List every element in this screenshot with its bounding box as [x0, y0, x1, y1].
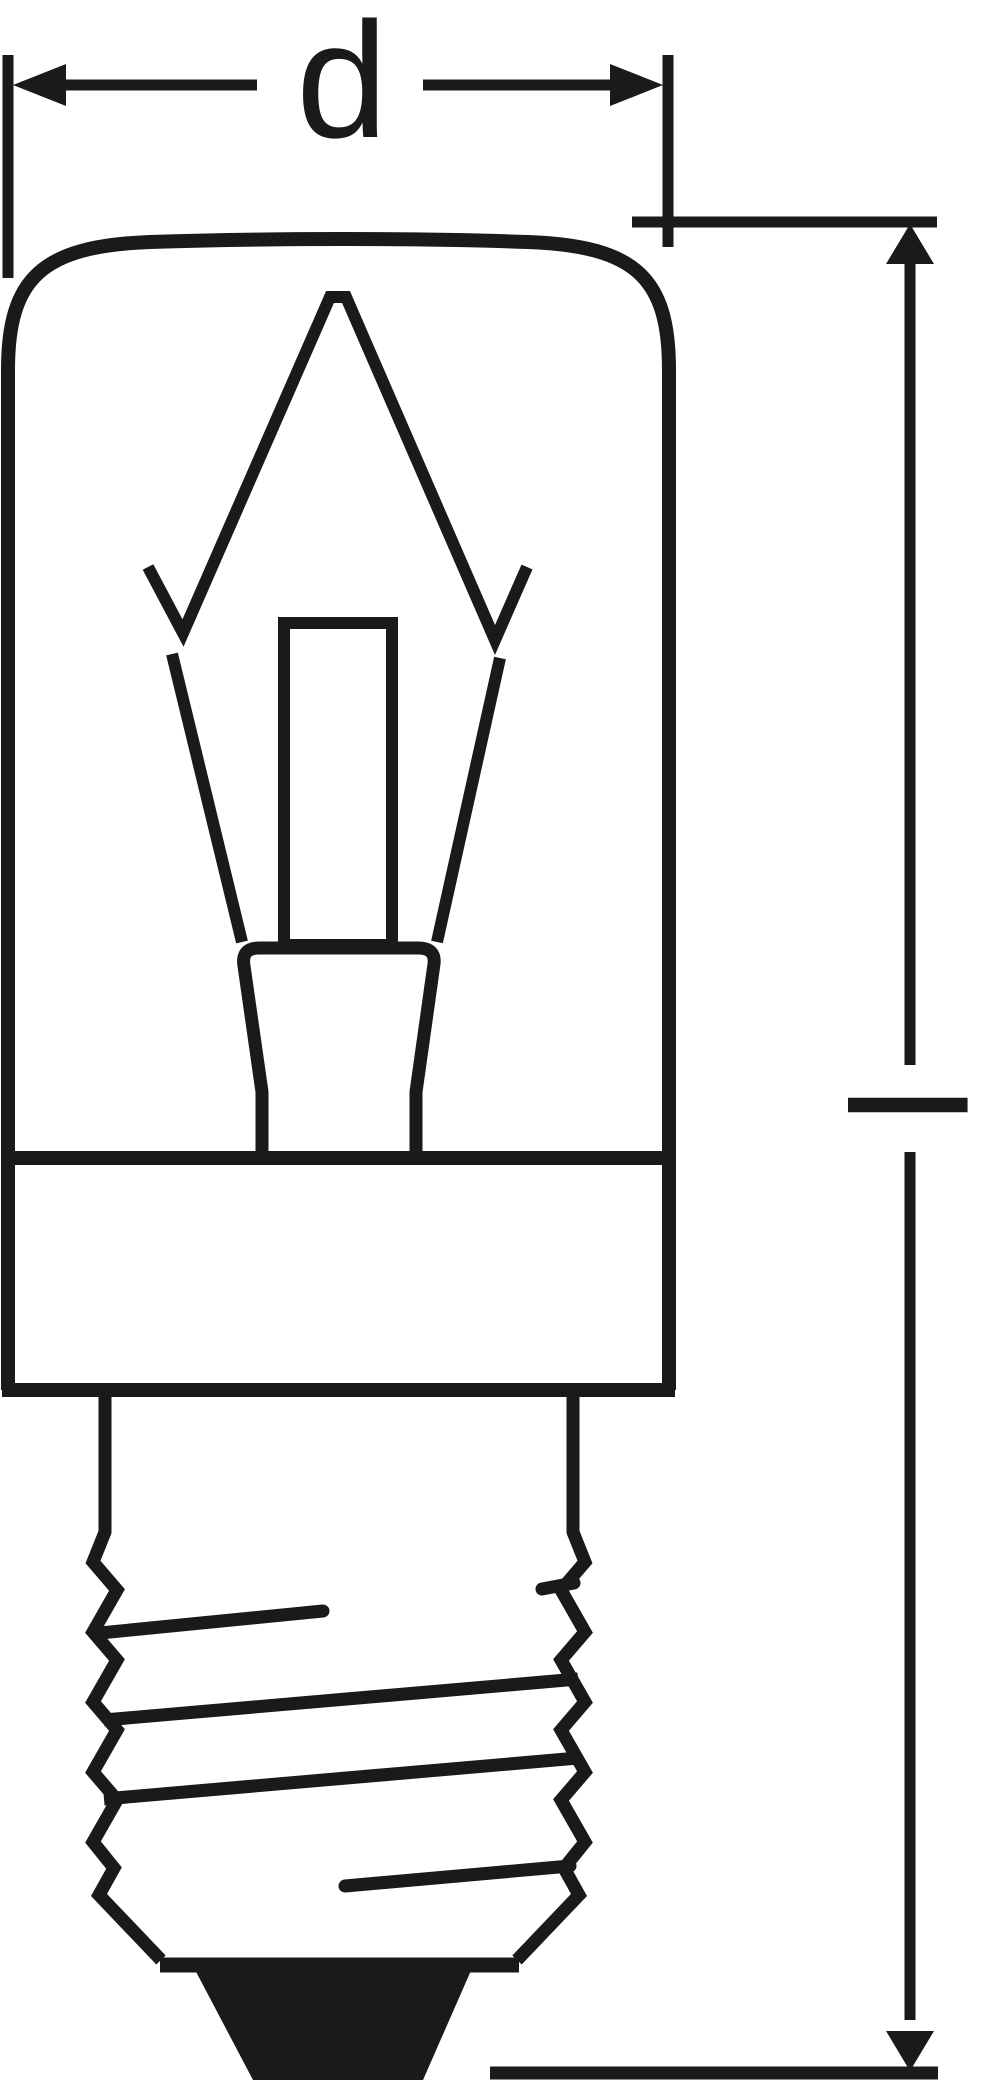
- thread-line-2: [104, 1679, 578, 1720]
- thread-line-1: [100, 1611, 323, 1633]
- stem-tube: [284, 623, 392, 945]
- support-wire-right: [437, 658, 500, 942]
- base-edge-left: [93, 1397, 161, 1960]
- arrowhead-left-icon: [13, 64, 66, 106]
- support-wire-left: [172, 654, 242, 942]
- arrowhead-down-icon: [886, 2031, 934, 2071]
- arrowhead-up-icon: [886, 224, 934, 264]
- diameter-label: d: [296, 0, 388, 172]
- stem: [244, 623, 435, 1162]
- stem-press: [244, 948, 435, 1162]
- lamp-dimension-drawing: d: [0, 0, 1000, 2080]
- bulb: [2, 239, 675, 1390]
- thread-line-4: [345, 1866, 570, 1886]
- filament-wire: [148, 297, 527, 640]
- base-solder-contact: [193, 1966, 473, 2080]
- thread-line-3: [104, 1758, 578, 1799]
- bulb-outline: [8, 239, 669, 1390]
- length-label: l: [813, 1087, 997, 1124]
- arrowhead-right-icon: [610, 64, 663, 106]
- screw-base: [93, 1397, 585, 2080]
- thread-line-1b: [542, 1583, 574, 1589]
- lamp-drawing-canvas: d: [0, 0, 1000, 2080]
